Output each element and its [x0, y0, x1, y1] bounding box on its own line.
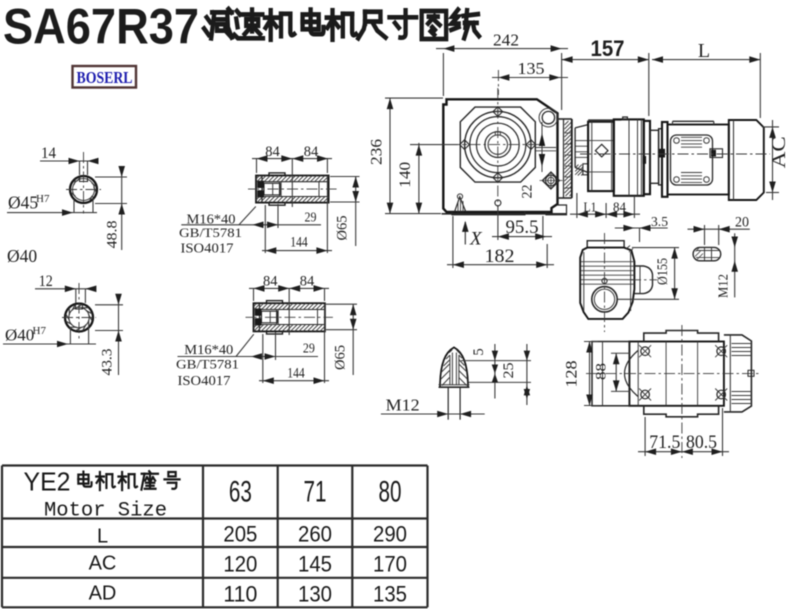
svg-text:BOSERL: BOSERL: [77, 68, 133, 87]
svg-text:ISO4017: ISO4017: [178, 373, 231, 388]
svg-text:182: 182: [485, 246, 515, 267]
svg-text:128: 128: [563, 361, 580, 388]
svg-text:AC: AC: [768, 136, 790, 168]
svg-text:H7: H7: [36, 193, 50, 205]
svg-text:80: 80: [379, 476, 402, 509]
svg-text:29: 29: [305, 211, 317, 226]
svg-text:Ø65: Ø65: [333, 345, 349, 370]
svg-text:84: 84: [300, 274, 315, 290]
svg-text:84: 84: [265, 144, 280, 160]
svg-text:71.5: 71.5: [649, 433, 680, 453]
svg-text:YE2: YE2: [24, 467, 71, 497]
svg-text:84: 84: [613, 201, 626, 216]
svg-text:120: 120: [223, 551, 257, 576]
svg-text:242: 242: [493, 31, 519, 50]
svg-text:AC: AC: [89, 553, 117, 575]
svg-text:Ø45: Ø45: [8, 193, 38, 213]
svg-text:22: 22: [520, 185, 536, 199]
svg-text:170: 170: [373, 551, 407, 576]
svg-text:SA67R37: SA67R37: [3, 0, 199, 55]
svg-text:135: 135: [518, 59, 545, 78]
svg-text:M12: M12: [717, 274, 732, 298]
svg-text:80.5: 80.5: [686, 433, 717, 453]
svg-text:GB/T5781: GB/T5781: [176, 356, 239, 371]
svg-text:GB/T5781: GB/T5781: [179, 225, 242, 240]
svg-text:260: 260: [298, 521, 332, 546]
svg-text:25: 25: [501, 363, 517, 379]
svg-text:20: 20: [735, 215, 749, 231]
svg-text:135: 135: [373, 581, 407, 606]
svg-text:157: 157: [591, 36, 625, 61]
svg-text:290: 290: [373, 521, 407, 546]
svg-text:AD: AD: [89, 583, 117, 605]
svg-text:M12: M12: [386, 396, 420, 415]
svg-text:14: 14: [41, 145, 56, 162]
svg-text:Ø155: Ø155: [655, 258, 671, 285]
svg-text:88: 88: [594, 363, 610, 380]
svg-text:236: 236: [369, 139, 386, 165]
svg-text:X: X: [469, 229, 483, 250]
svg-text:Motor Size: Motor Size: [44, 500, 167, 523]
svg-text:43.3: 43.3: [100, 349, 116, 376]
svg-text:140: 140: [397, 162, 414, 188]
svg-text:Ø65: Ø65: [335, 216, 351, 241]
svg-text:L: L: [698, 40, 710, 62]
svg-text:144: 144: [290, 235, 308, 251]
svg-text:144: 144: [287, 366, 305, 382]
svg-text:84: 84: [304, 144, 319, 160]
svg-text:110: 110: [223, 581, 257, 606]
svg-text:63: 63: [229, 476, 252, 509]
svg-text:Ø40: Ø40: [5, 326, 34, 345]
svg-text:5: 5: [471, 348, 487, 356]
svg-text:145: 145: [298, 551, 332, 576]
svg-text:95.5: 95.5: [506, 217, 539, 238]
svg-text:130: 130: [298, 581, 332, 606]
svg-text:48.8: 48.8: [105, 221, 121, 249]
svg-text:3.5: 3.5: [651, 215, 668, 230]
svg-text:L: L: [97, 526, 108, 548]
svg-text:71: 71: [304, 476, 327, 509]
svg-text:84: 84: [263, 274, 278, 290]
svg-text:205: 205: [223, 521, 257, 546]
svg-text:L1: L1: [584, 201, 597, 216]
svg-text:Ø40: Ø40: [7, 246, 37, 266]
svg-text:29: 29: [303, 342, 315, 357]
svg-text:12: 12: [39, 273, 53, 290]
svg-text:H7: H7: [33, 325, 47, 337]
svg-text:M16*40: M16*40: [184, 342, 233, 357]
svg-text:ISO4017: ISO4017: [181, 241, 234, 256]
